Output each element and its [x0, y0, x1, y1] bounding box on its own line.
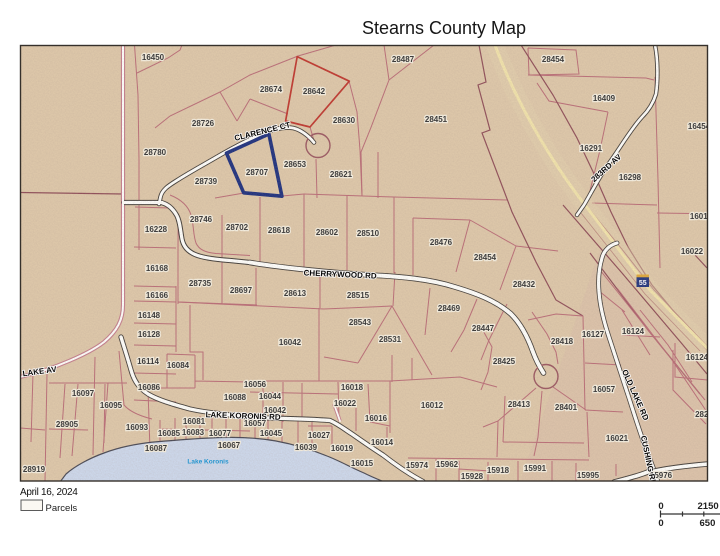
svg-text:Parcels: Parcels	[46, 503, 78, 514]
svg-text:650: 650	[700, 518, 716, 529]
svg-text:Stearns County Map: Stearns County Map	[362, 18, 526, 38]
svg-text:0: 0	[658, 501, 663, 512]
svg-text:2150: 2150	[698, 501, 719, 512]
svg-text:0: 0	[658, 518, 663, 529]
svg-text:April 16, 2024: April 16, 2024	[20, 487, 78, 498]
